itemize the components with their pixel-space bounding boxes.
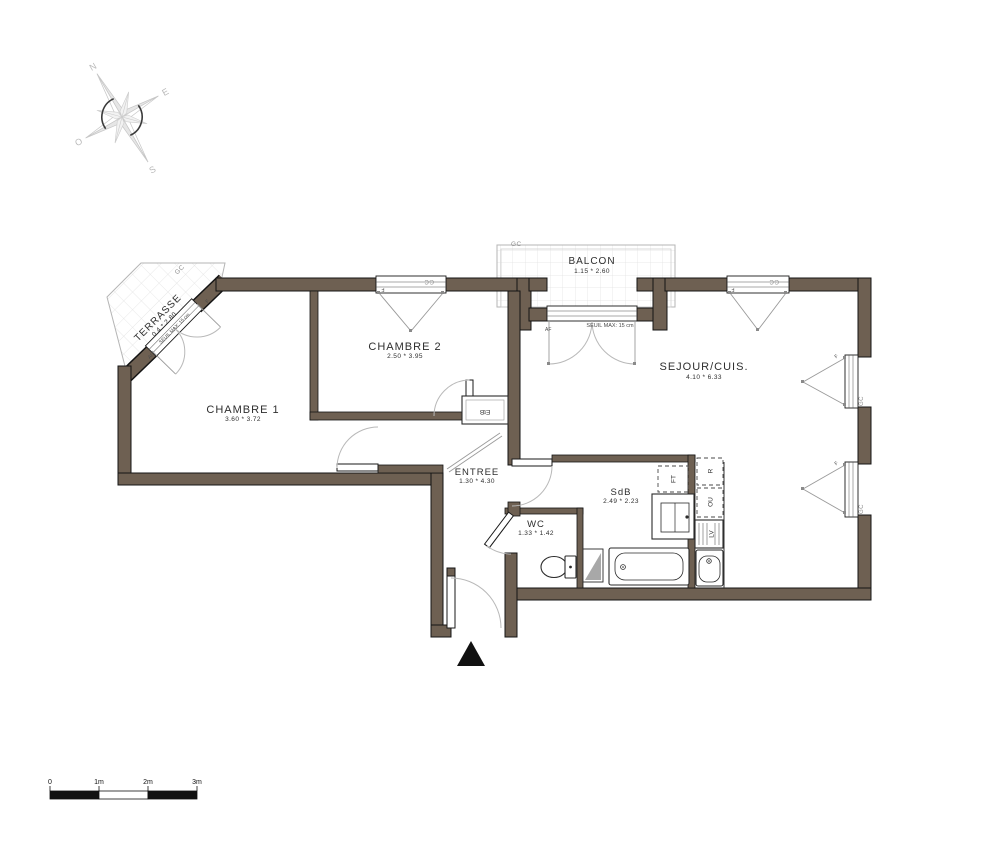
room-dims-entree: 1.30 * 4.30 — [459, 478, 495, 485]
compass-e: E — [160, 86, 170, 98]
wall-sejour-west — [508, 291, 520, 465]
gc-window-right-2: GC — [859, 504, 865, 514]
wall-top-3 — [665, 278, 727, 291]
entrance-marker — [457, 641, 485, 666]
balcony-pier-left-top — [529, 278, 547, 291]
bathtub — [609, 548, 689, 585]
window-right-2 — [801, 462, 858, 517]
scale-3m: 3m — [192, 779, 202, 786]
wall-chambre2-west — [310, 291, 318, 420]
wall-left — [118, 366, 131, 485]
room-label-entree: ENTREE — [455, 467, 500, 478]
scale-2m: 2m — [143, 779, 153, 786]
wall-bottom-left — [118, 473, 443, 485]
room-label-chambre2: CHAMBRE 2 — [368, 341, 441, 353]
door-entrance — [447, 576, 501, 628]
balcony-door — [547, 306, 637, 365]
room-label-chambre1: CHAMBRE 1 — [206, 404, 279, 416]
wall-right-3 — [858, 515, 871, 600]
cabinet-etb-label: EtB — [480, 408, 490, 415]
window-chambre2 — [376, 276, 446, 332]
oven-label: OU — [708, 497, 715, 507]
wall-wc-east — [577, 508, 583, 588]
dishwasher-label: LV — [709, 530, 716, 538]
seuil-balcony: SEUIL MAX: 15 cm — [586, 323, 634, 329]
wall-top-1 — [216, 278, 376, 291]
wall-chambre2-south — [310, 412, 462, 420]
walls — [118, 278, 871, 637]
wall-sdb-north — [552, 455, 695, 462]
toilet — [541, 556, 576, 578]
wall-vestibule-left — [431, 473, 443, 637]
room-label-sdb: SdB — [611, 487, 632, 498]
floor-plan-canvas: N E S O TERRASSE 0.4 * 2.80 BALCON 1.15 … — [0, 0, 1000, 857]
room-dims-sejour: 4.10 * 6.33 — [686, 374, 722, 381]
vanity — [652, 494, 694, 539]
door-sdb — [512, 459, 552, 506]
room-dims-balcon: 1.15 * 2.60 — [574, 268, 610, 275]
compass-o: O — [73, 136, 84, 148]
dishwasher: LV — [695, 520, 723, 548]
room-dims-chambre1: 3.60 * 3.72 — [225, 416, 261, 423]
compass-rose: N E S O — [44, 36, 201, 201]
gc-window-sejour: GC — [769, 278, 779, 284]
room-dims-wc: 1.33 * 1.42 — [518, 530, 554, 537]
room-dims-sdb: 2.49 * 2.23 — [603, 498, 639, 505]
wall-vestibule-right — [505, 553, 517, 637]
ft-label: FT — [671, 475, 678, 483]
room-dims-chambre2: 2.50 * 3.95 — [387, 353, 423, 360]
room-label-wc: WC — [527, 519, 545, 530]
room-label-balcon: BALCON — [568, 256, 615, 267]
wall-right-2 — [858, 407, 871, 464]
room-label-sejour: SEJOUR/CUIS. — [659, 361, 748, 373]
floor-plan-drawing: N E S O TERRASSE 0.4 * 2.80 BALCON 1.15 … — [0, 0, 1000, 857]
scale-bar: 0 1m 2m 3m — [48, 779, 202, 799]
gc-balcony: GC — [511, 241, 522, 248]
f-window-chambre2: F — [381, 286, 384, 292]
balcony-pier-left-bot — [529, 308, 547, 321]
f-window-sejour: F — [731, 286, 734, 292]
kitchen-sink — [696, 550, 723, 586]
compass-s: S — [147, 164, 157, 176]
wall-top-2 — [446, 278, 521, 291]
door-chambre1 — [337, 427, 378, 471]
window-right-1 — [801, 355, 858, 408]
wall-right-1 — [858, 278, 871, 357]
compass-star — [61, 53, 185, 183]
gc-window-right-1: GC — [859, 396, 865, 406]
scale-1m: 1m — [94, 779, 104, 786]
f-window-right-2: F — [834, 460, 840, 467]
wall-bottom-right — [505, 588, 871, 600]
technical-shaft — [583, 549, 603, 582]
scale-0: 0 — [48, 779, 52, 786]
wc-fixtures — [541, 556, 576, 578]
wall-chambre1-door — [378, 465, 443, 473]
cabinet-etb: EtB — [462, 396, 508, 424]
f-window-right-1: F — [834, 353, 840, 360]
compass-n: N — [88, 61, 99, 73]
af-balcony: AF — [545, 327, 551, 333]
terrace: TERRASSE 0.4 * 2.80 — [107, 263, 225, 370]
gc-window-chambre2: GC — [424, 278, 434, 284]
fridge-label: R — [708, 468, 715, 473]
balcony-pier-right-top — [637, 278, 655, 291]
balcony-pier-right-bot — [637, 308, 655, 321]
kitchen: R OU LV — [695, 458, 724, 588]
bathroom-fixtures: FT — [583, 466, 694, 585]
door-wc — [485, 512, 514, 554]
